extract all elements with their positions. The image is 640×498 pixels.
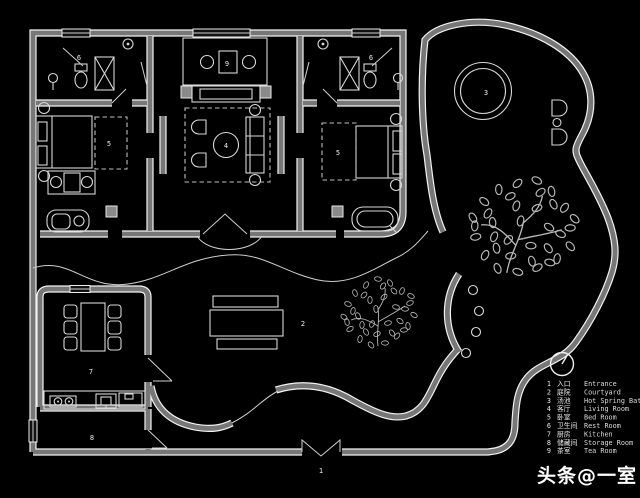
legend-num: 4 bbox=[547, 405, 551, 413]
storage-room bbox=[148, 430, 167, 448]
legend-en: Courtyard bbox=[584, 388, 621, 396]
legend-num: 7 bbox=[547, 430, 551, 438]
legend-zh: 庭院 bbox=[557, 387, 571, 396]
legend-en: Living Room bbox=[584, 405, 629, 413]
room-label-bed-right: 5 bbox=[336, 149, 340, 157]
legend-zh: 汤池 bbox=[557, 396, 571, 405]
entrance-door bbox=[302, 440, 340, 456]
room-label-bed-left: 5 bbox=[107, 140, 111, 148]
courtyard-table bbox=[210, 296, 283, 349]
bed-room-left bbox=[36, 103, 127, 233]
courtyard-paths bbox=[33, 231, 428, 423]
legend-en: Rest Room bbox=[584, 422, 621, 430]
watermark: 头条@一室 bbox=[537, 464, 637, 487]
legend-en: Tea Room bbox=[584, 447, 617, 455]
room-label-living: 4 bbox=[224, 142, 228, 150]
tea-room bbox=[181, 38, 271, 102]
legend-zh: 茶室 bbox=[557, 446, 571, 455]
floor-plan: 1 2 3 4 5 5 6 6 7 8 9 1 入口 Entrance 2 庭院… bbox=[0, 0, 640, 498]
legend-zh: 厨房 bbox=[557, 429, 571, 438]
legend-num: 5 bbox=[547, 414, 551, 422]
rest-room-left bbox=[49, 48, 148, 103]
legend-en: Hot Spring Bath bbox=[584, 397, 640, 405]
legend-num: 3 bbox=[547, 397, 551, 405]
legend-num: 9 bbox=[547, 447, 551, 455]
tree-icon bbox=[453, 160, 594, 296]
room-label-rest-right: 6 bbox=[369, 54, 373, 62]
living-room bbox=[185, 105, 270, 235]
legend-zh: 客厅 bbox=[557, 404, 571, 413]
floor-plan-image: 1 2 3 4 5 5 6 6 7 8 9 1 入口 Entrance 2 庭院… bbox=[0, 0, 640, 498]
tree-icon bbox=[340, 276, 418, 349]
hot-spring-pool bbox=[455, 63, 568, 358]
legend-zh: 入口 bbox=[557, 380, 571, 388]
room-label-entrance: 1 bbox=[319, 467, 323, 475]
legend-num: 1 bbox=[547, 380, 551, 388]
legend-en: Bed Room bbox=[584, 414, 617, 422]
rest-room-right bbox=[303, 48, 403, 103]
room-label-storage: 8 bbox=[90, 434, 94, 442]
legend-zh: 储藏间 bbox=[557, 438, 578, 447]
room-label-rest-left: 6 bbox=[77, 54, 81, 62]
legend-zh: 卫生间 bbox=[557, 421, 578, 430]
legend-num: 6 bbox=[547, 422, 551, 430]
legend-num: 2 bbox=[547, 388, 551, 396]
legend: 1 入口 Entrance 2 庭院 Courtyard 3 汤池 Hot Sp… bbox=[547, 380, 640, 455]
room-label-hot-spring: 3 bbox=[484, 89, 488, 97]
legend-num: 8 bbox=[547, 439, 551, 447]
room-label-courtyard: 2 bbox=[301, 320, 305, 328]
room-label-tea: 9 bbox=[225, 60, 229, 68]
room-label-kitchen: 7 bbox=[89, 368, 93, 376]
legend-en: Kitchen bbox=[584, 430, 613, 438]
legend-en: Storage Room bbox=[584, 439, 633, 447]
legend-zh: 卧室 bbox=[557, 413, 571, 422]
legend-en: Entrance bbox=[584, 380, 617, 388]
bed-room-right bbox=[322, 114, 402, 234]
